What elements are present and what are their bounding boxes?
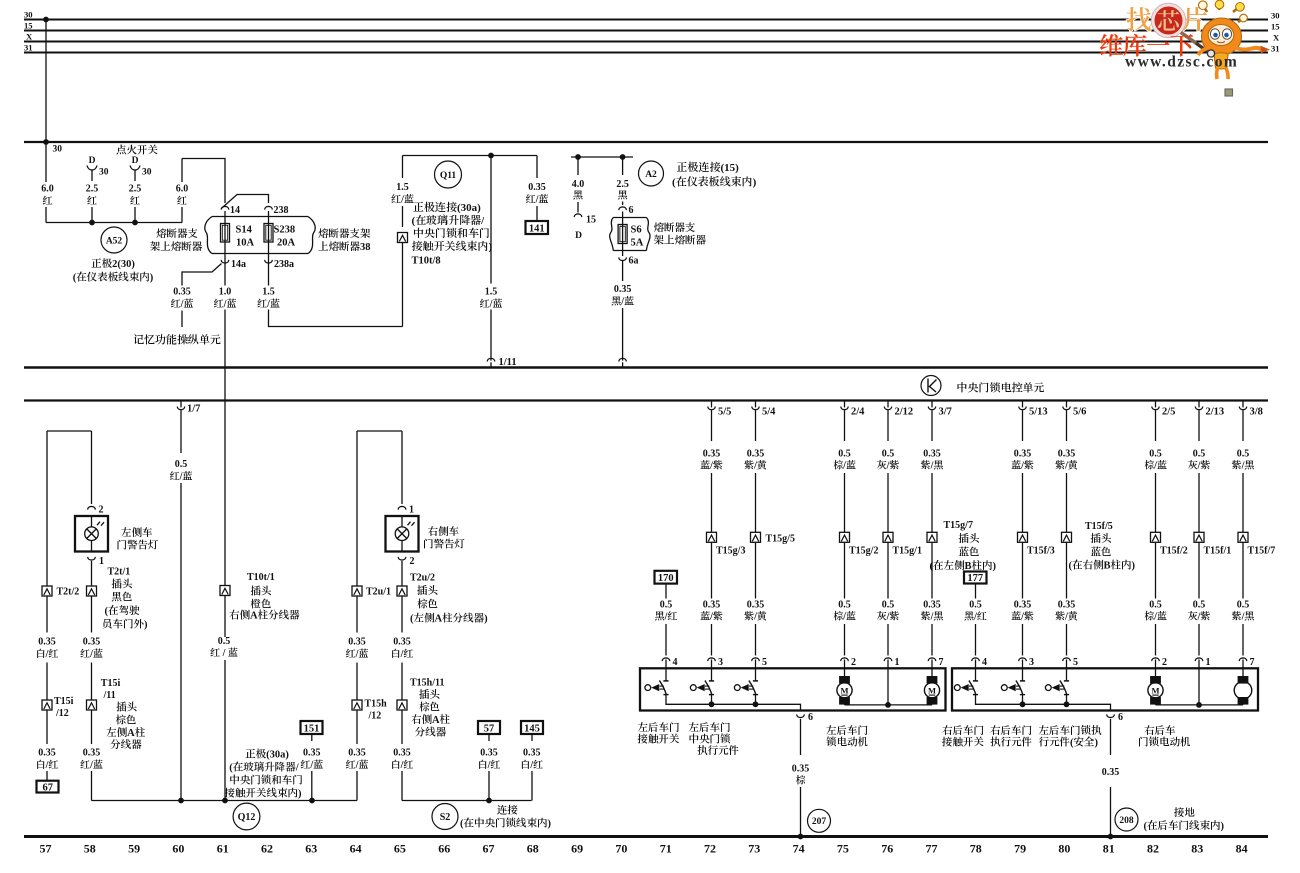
svg-text:中央门锁电控单元: 中央门锁电控单元 [957,380,1045,396]
svg-text:31: 31 [24,42,33,54]
svg-text:D: D [132,152,139,166]
svg-text:1: 1 [99,552,104,567]
svg-text:蓝/紫: 蓝/紫 [1011,457,1034,472]
svg-text:151: 151 [304,720,320,735]
svg-text:红/蓝: 红/蓝 [80,645,103,660]
svg-text:红/蓝: 红/蓝 [526,190,549,205]
svg-text:63: 63 [305,840,317,857]
svg-text:门锁电动机: 门锁电动机 [1138,735,1191,750]
svg-text:66: 66 [438,840,450,857]
svg-text:Q11: Q11 [440,167,457,181]
svg-text:0.35: 0.35 [1102,763,1120,778]
svg-text:右侧A柱分线器: 右侧A柱分线器 [229,608,300,623]
svg-text:灰/紫: 灰/紫 [877,608,900,623]
svg-text:黑/蓝: 黑/蓝 [611,292,634,307]
svg-text:15: 15 [586,211,596,226]
svg-text:白/红: 白/红 [478,756,501,771]
svg-text:69: 69 [571,840,583,857]
svg-text:黑/红: 黑/红 [655,608,678,623]
svg-text:83: 83 [1191,840,1203,857]
svg-text:T2u/1: T2u/1 [366,583,391,598]
svg-text:177: 177 [967,570,983,585]
svg-text:D: D [89,152,96,166]
svg-text:紫/黄: 紫/黄 [744,457,767,472]
svg-text:68: 68 [527,840,539,857]
svg-text:执行元件: 执行元件 [697,743,739,758]
svg-text:紫/黄: 紫/黄 [744,608,767,623]
svg-text:门警告灯: 门警告灯 [117,538,159,553]
svg-text:1: 1 [895,653,900,668]
svg-text:白/红: 白/红 [391,756,414,771]
svg-text:(在右侧B柱内): (在右侧B柱内) [1069,558,1136,573]
svg-text:81: 81 [1103,840,1115,857]
svg-text:灰/紫: 灰/紫 [1188,457,1211,472]
svg-text:(在仪表板线束内): (在仪表板线束内) [672,174,757,190]
svg-text:6: 6 [808,708,813,723]
svg-text:170: 170 [658,570,674,585]
svg-text:T10t/8: T10t/8 [412,253,441,268]
svg-text:红/蓝: 红/蓝 [346,645,369,660]
svg-text:T15g/3: T15g/3 [716,542,745,557]
svg-text:T15f/2: T15f/2 [1160,542,1188,557]
svg-text:接触开关线束内): 接触开关线束内) [225,786,302,801]
svg-text:灰/紫: 灰/紫 [877,457,900,472]
svg-text:/11: /11 [103,686,116,701]
svg-text:行元件(安全): 行元件(安全) [1039,735,1099,750]
svg-text:S2: S2 [440,808,451,823]
svg-text:5A: 5A [631,235,644,250]
svg-text:73: 73 [748,840,760,857]
svg-text:(在后车门线束内): (在后车门线束内) [1144,818,1225,833]
svg-text:10A: 10A [236,235,255,250]
svg-text:207: 207 [812,813,827,827]
svg-text:72: 72 [704,840,716,857]
svg-text:分线器: 分线器 [110,737,142,752]
svg-text:锁电动机: 锁电动机 [826,735,868,750]
svg-text:Q12: Q12 [238,808,256,823]
svg-text:www.dzsc.com: www.dzsc.com [1125,50,1238,72]
svg-text:红: 红 [130,192,140,207]
svg-text:238: 238 [274,201,289,216]
svg-text:3: 3 [718,653,723,668]
svg-text:执行元件: 执行元件 [990,735,1032,750]
svg-text:61: 61 [217,840,229,857]
svg-text:4: 4 [673,653,678,668]
svg-text:5/4: 5/4 [762,404,776,419]
svg-text:T15g/7: T15g/7 [944,516,973,531]
svg-text:红/蓝: 红/蓝 [171,295,194,310]
svg-text:77: 77 [926,840,938,857]
svg-text:2/5: 2/5 [1162,404,1175,419]
svg-text:31: 31 [1271,43,1280,55]
svg-text:红/蓝: 红/蓝 [300,756,323,771]
svg-text:82: 82 [1147,840,1159,857]
svg-text:30: 30 [99,164,109,178]
svg-text:7: 7 [939,653,944,668]
svg-text:分线器: 分线器 [415,725,447,740]
svg-text:208: 208 [1119,812,1134,826]
svg-text:接触开关: 接触开关 [942,735,984,750]
svg-text:紫/黑: 紫/黑 [921,608,944,623]
svg-text:上熔断器38: 上熔断器38 [318,239,371,254]
svg-text:红/蓝: 红/蓝 [214,295,237,310]
svg-text:6: 6 [629,201,634,216]
svg-text:75: 75 [837,840,849,857]
svg-text:T2t/1: T2t/1 [108,563,131,578]
svg-text:145: 145 [524,720,540,735]
svg-text:14a: 14a [231,255,246,270]
svg-text:80: 80 [1058,840,1070,857]
svg-text:蓝/紫: 蓝/紫 [700,608,723,623]
svg-text:T15f/7: T15f/7 [1248,542,1276,557]
svg-text:蓝/紫: 蓝/紫 [700,457,723,472]
svg-text:棕色: 棕色 [417,597,438,612]
svg-text:5/5: 5/5 [718,404,731,419]
svg-text:2/12: 2/12 [895,404,914,419]
svg-text:白/红: 白/红 [391,645,414,660]
svg-text:红/蓝: 红/蓝 [346,756,369,771]
svg-text:57: 57 [484,720,495,735]
svg-text:2/13: 2/13 [1206,404,1225,419]
svg-text:67: 67 [483,840,495,857]
svg-text:60: 60 [172,840,184,857]
svg-text:红: 红 [43,192,53,207]
svg-text:1/7: 1/7 [187,401,200,416]
svg-text:2: 2 [410,552,415,567]
svg-text:架上熔断器: 架上熔断器 [150,239,203,254]
svg-text:T15g/1: T15g/1 [893,542,922,557]
svg-text:/12: /12 [55,704,69,719]
svg-text:4: 4 [982,653,987,668]
svg-text:T15f/5: T15f/5 [1085,517,1113,532]
svg-text:棕/蓝: 棕/蓝 [1144,457,1167,472]
svg-text:红: 红 [177,192,187,207]
svg-text:T10t/1: T10t/1 [247,568,275,583]
svg-text:6: 6 [1118,708,1123,723]
svg-text:(左侧A柱分线器): (左侧A柱分线器) [410,611,488,626]
svg-text:黑: 黑 [573,187,583,202]
svg-text:5/6: 5/6 [1073,404,1086,419]
svg-text:3: 3 [1029,653,1034,668]
svg-text:记忆功能操纵单元: 记忆功能操纵单元 [133,332,221,348]
svg-text:30: 30 [53,141,63,155]
svg-text:紫/黑: 紫/黑 [921,457,944,472]
svg-text:白/红: 白/红 [36,756,59,771]
svg-text:门警告灯: 门警告灯 [423,537,465,552]
svg-text:棕/蓝: 棕/蓝 [833,457,856,472]
svg-text:红/蓝: 红/蓝 [80,756,103,771]
svg-text:接触开关: 接触开关 [638,732,680,747]
svg-text:79: 79 [1014,840,1026,857]
svg-text:黑/红: 黑/红 [964,608,987,623]
svg-text:141: 141 [529,221,545,236]
svg-text:1: 1 [409,501,414,516]
svg-text:3/7: 3/7 [939,404,952,419]
svg-text:58: 58 [84,840,96,857]
svg-text:T2u/2: T2u/2 [410,569,435,584]
svg-text:架上熔断器: 架上熔断器 [654,233,707,248]
svg-text:A52: A52 [106,232,123,246]
svg-text:65: 65 [394,840,406,857]
svg-text:T2t/2: T2t/2 [57,583,80,598]
svg-text:5: 5 [762,653,767,668]
svg-text:74: 74 [793,840,805,857]
svg-text:红: 红 [87,192,97,207]
svg-text:30: 30 [142,164,152,178]
svg-text:/12: /12 [368,707,382,722]
svg-text:T15g/5: T15g/5 [766,530,795,545]
svg-text:70: 70 [615,840,627,857]
svg-text:白/红: 白/红 [520,756,543,771]
svg-text:红/蓝: 红/蓝 [480,295,503,310]
svg-text:67: 67 [43,779,54,794]
svg-text:紫/黄: 紫/黄 [1055,608,1078,623]
svg-text:62: 62 [261,840,273,857]
svg-text:76: 76 [881,840,893,857]
svg-text:238a: 238a [274,255,294,270]
svg-text:78: 78 [970,840,982,857]
svg-text:2: 2 [851,653,856,668]
svg-text:71: 71 [660,840,672,857]
svg-text:14: 14 [230,201,240,216]
svg-text:(在仪表板线束内): (在仪表板线束内) [73,270,154,285]
svg-text:T15f/3: T15f/3 [1027,542,1055,557]
svg-text:红/蓝: 红/蓝 [391,190,414,205]
svg-text:紫/黄: 紫/黄 [1055,457,1078,472]
svg-text:灰/紫: 灰/紫 [1188,608,1211,623]
svg-text:蓝/紫: 蓝/紫 [1011,608,1034,623]
svg-text:2/4: 2/4 [851,404,865,419]
svg-text:1: 1 [1206,653,1211,668]
svg-text:红 / 蓝: 红 / 蓝 [210,644,238,659]
svg-text:紫/黑: 紫/黑 [1232,608,1255,623]
svg-text:A2: A2 [645,166,657,180]
svg-text:紫/黑: 紫/黑 [1232,457,1255,472]
svg-text:D: D [575,227,582,241]
svg-text:20A: 20A [277,235,296,250]
svg-text:T15g/2: T15g/2 [849,542,878,557]
svg-text:2: 2 [1162,653,1167,668]
svg-text:3/8: 3/8 [1250,404,1263,419]
svg-text:红/蓝: 红/蓝 [170,467,193,482]
svg-text:5: 5 [1073,653,1078,668]
svg-text:棕/蓝: 棕/蓝 [833,608,856,623]
svg-text:84: 84 [1236,840,1248,857]
svg-text:T15f/1: T15f/1 [1204,542,1232,557]
svg-text:6a: 6a [629,252,639,267]
svg-text:57: 57 [40,840,52,857]
svg-text:白/红: 白/红 [36,645,59,660]
svg-text:59: 59 [128,840,140,857]
svg-text:1/11: 1/11 [499,354,517,369]
svg-text:员车门外): 员车门外) [102,617,148,632]
svg-text:黑: 黑 [618,187,628,202]
svg-text:(在中央门锁线束内): (在中央门锁线束内) [460,816,551,831]
svg-text:5/13: 5/13 [1029,404,1048,419]
svg-text:棕/蓝: 棕/蓝 [1144,608,1167,623]
svg-text:2: 2 [99,501,104,516]
svg-text:红/蓝: 红/蓝 [257,295,280,310]
svg-text:64: 64 [350,840,362,857]
svg-text:7: 7 [1250,653,1255,668]
svg-text:棕: 棕 [796,772,806,787]
